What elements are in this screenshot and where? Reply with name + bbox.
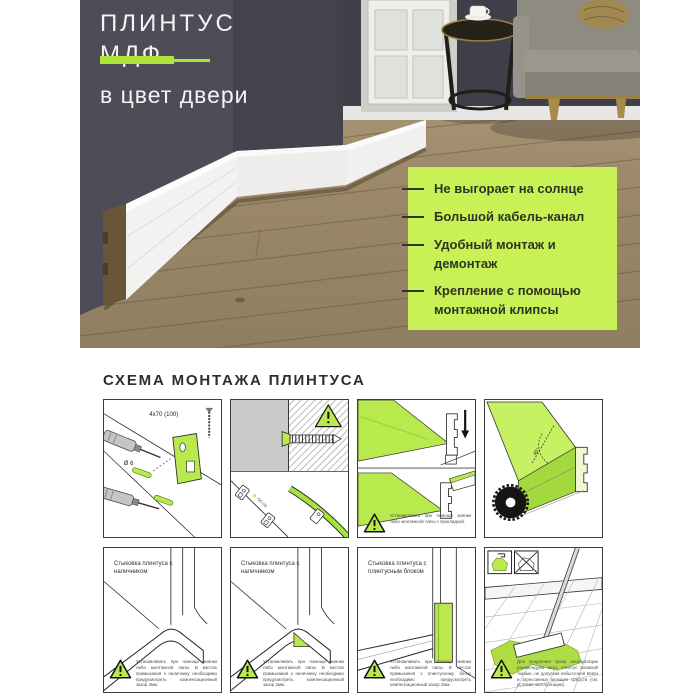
panel5-note: Устанавливать при помощи киянки либо мон… [109,659,217,688]
underline-thick-bar [100,56,174,64]
plinth-strip [485,578,602,600]
dash-bullet-icon [402,188,424,190]
white-door [361,0,457,112]
hero-title-line1: ПЛИНТУС [100,8,236,39]
scheme-panel-4-cut-45: 45° [484,399,603,538]
panel4-drawing: 45° [485,400,602,537]
note-text: Устанавливать при помощи киянки либо мон… [390,659,471,688]
feature-label: Большой кабель-канал [434,208,594,227]
product-infographic: ПЛИНТУС МДФ в цвет двери Не выгорает на … [0,0,700,700]
scheme-panel-8-care: Для продления срока эксплуатации рекомен… [484,547,603,693]
panel-caption: Стыковка плинтуса с плинтусным блоком [368,560,442,576]
screw-size-label: 4x70 (100) [149,411,178,418]
note-text: Устанавливать при помощи киянки либо мон… [136,659,217,688]
feature-callout-box: Не выгорает на солнце Большой кабель-кан… [408,167,617,330]
warning-triangle-icon [236,659,259,679]
warning-triangle-icon [363,659,386,679]
scheme-panel-7-block-joint: Стыковка плинтуса с плинтусным блоком Ус… [357,547,476,693]
scheme-panel-6-casing-joint-wedge: Стыковка плинтуса с наличником Устанавли… [230,547,349,693]
plinth-profile [575,447,587,491]
feature-item: Крепление с помощью монтажной клипсы [402,282,603,320]
panel8-note: Для продления срока эксплуатации рекомен… [490,659,598,688]
dash-bullet-icon [402,290,424,292]
damp-cloth-allowed-icon [488,551,512,574]
scheme-panel-1-drill-and-clip: 4x70 (100) Ø 6 [103,399,222,538]
hero-subtitle: в цвет двери [100,82,249,109]
mounting-clip-icon [173,434,202,484]
wet-cloth-forbidden-icon [514,551,538,574]
panel-caption: Стыковка плинтуса с наличником [114,560,188,576]
wall-corner-column [233,0,343,154]
panel-caption: Стыковка плинтуса с наличником [241,560,315,576]
note-text: Устанавливать при помощи киянки либо мон… [263,659,344,688]
panel2-drawing: ~50 см [231,400,348,537]
note-text: Для продления срока эксплуатации рекомен… [517,659,598,688]
plinth-profile [446,414,457,455]
warning-triangle-icon [109,659,132,679]
note-text: Устанавливать при помощи киянки либо мон… [390,513,471,524]
panel3-note: Устанавливать при помощи киянки либо мон… [363,513,471,533]
feature-item: Удобный монтаж и демонтаж [402,236,603,274]
dowel-icon [153,495,173,506]
feature-item: Не выгорает на солнце [402,180,603,199]
arrow-down-icon [461,410,469,439]
feature-label: Крепление с помощью монтажной клипсы [434,282,594,320]
plinth-block [435,603,453,662]
green-underline [100,56,210,64]
hatched-wall [289,400,348,471]
scheme-heading: СХЕМА МОНТАЖА ПЛИНТУСА [103,372,366,389]
hero-title-line2: МДФ [100,39,236,70]
feature-item: Большой кабель-канал [402,208,603,227]
clip-on-wall-icon [260,512,275,528]
feature-label: Не выгорает на солнце [434,180,594,199]
warning-triangle-icon [363,513,386,533]
screw-icon [205,408,213,438]
warning-triangle-icon [490,659,513,679]
dash-bullet-icon [402,244,424,246]
panel6-note: Устанавливать при помощи киянки либо мон… [236,659,344,688]
underline-thin-bar [174,59,210,62]
wall-section [231,400,288,471]
drill-icon [104,430,162,463]
panel7-note: Устанавливать при помощи киянки либо мон… [363,659,471,688]
drill-icon [104,487,161,514]
feature-label: Удобный монтаж и демонтаж [434,236,594,274]
panel1-drawing: 4x70 (100) Ø 6 [104,400,221,537]
scheme-panel-5-casing-joint: Стыковка плинтуса с наличником Устанавли… [103,547,222,693]
scheme-panel-2-fix-clips: ~50 см [230,399,349,538]
dash-bullet-icon [402,216,424,218]
green-corner-wedge [294,633,310,647]
cable-in-clips-icon [290,489,348,537]
dowel-icon [132,467,152,478]
plinth-mdf-end-cut [103,204,126,306]
dowel-size-label: Ø 6 [124,460,134,467]
scheme-panel-3-snap-on: Устанавливать при помощи киянки либо мон… [357,399,476,538]
